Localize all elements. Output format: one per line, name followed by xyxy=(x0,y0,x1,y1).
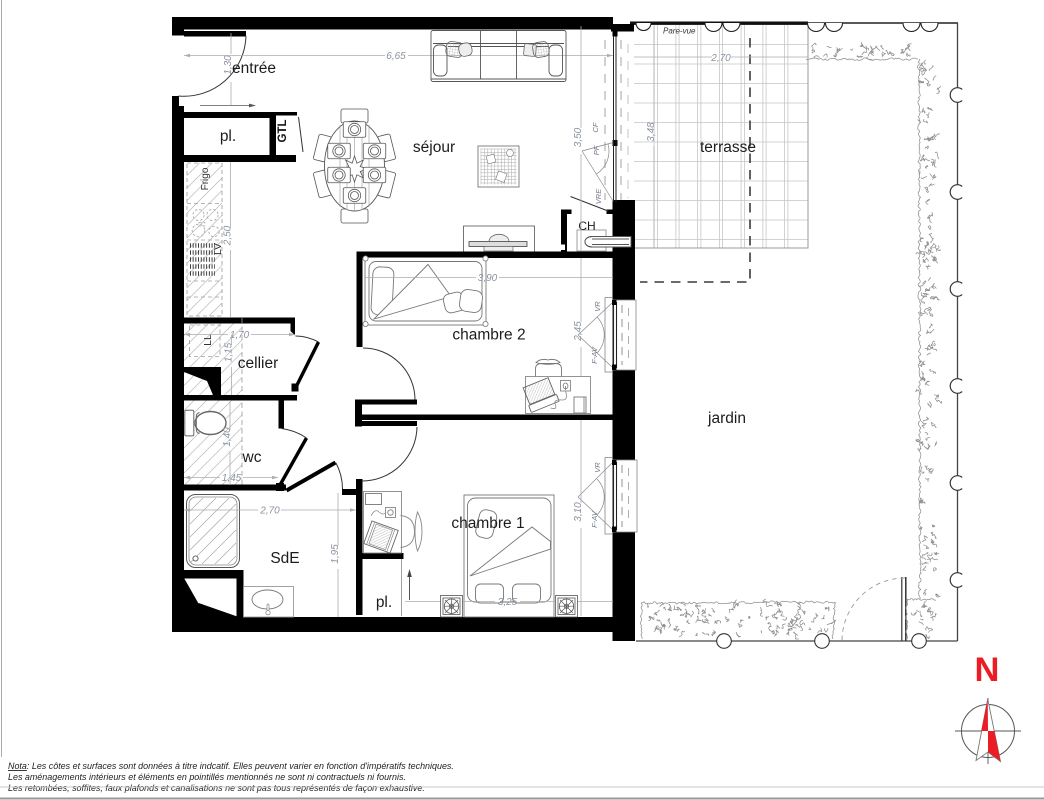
svg-text:2,70: 2,70 xyxy=(259,506,280,517)
svg-text:2,70: 2,70 xyxy=(710,53,731,64)
svg-text:terrasse: terrasse xyxy=(700,139,756,156)
svg-text:2,45: 2,45 xyxy=(573,321,584,342)
svg-text:cellier: cellier xyxy=(238,355,278,372)
svg-text:1,95: 1,95 xyxy=(330,544,341,564)
svg-text:entrée: entrée xyxy=(232,60,276,77)
svg-text:Les aménagements intérieurs et: Les aménagements intérieurs et éléments … xyxy=(8,772,406,782)
svg-text:3,10: 3,10 xyxy=(573,502,584,522)
svg-text:SdE: SdE xyxy=(270,550,299,567)
svg-text:1,45: 1,45 xyxy=(222,473,242,484)
svg-text:N: N xyxy=(975,651,1000,689)
svg-text:Frigo: Frigo xyxy=(200,167,211,190)
svg-text:1,40: 1,40 xyxy=(222,427,233,447)
svg-text:1,70: 1,70 xyxy=(230,330,250,341)
svg-text:wc: wc xyxy=(242,449,262,466)
svg-text:3,25: 3,25 xyxy=(498,597,518,608)
svg-text:Nota: Les côtes et surfaces so: Nota: Les côtes et surfaces sont données… xyxy=(8,761,454,771)
svg-text:pl.: pl. xyxy=(220,128,236,145)
svg-text:Pare-vue: Pare-vue xyxy=(663,27,696,36)
svg-text:6,65: 6,65 xyxy=(386,51,406,62)
svg-text:VR: VR xyxy=(593,301,602,312)
svg-text:Les retombées, soffites, faux: Les retombées, soffites, faux plafonds e… xyxy=(8,783,425,793)
svg-text:chambre 2: chambre 2 xyxy=(452,327,525,344)
svg-text:pl.: pl. xyxy=(376,594,392,611)
svg-text:3,50: 3,50 xyxy=(573,127,584,147)
svg-text:LL: LL xyxy=(202,334,214,346)
svg-text:F-AV: F-AV xyxy=(590,510,599,528)
svg-text:CF: CF xyxy=(591,122,600,132)
svg-text:séjour: séjour xyxy=(413,139,455,156)
svg-text:1,30: 1,30 xyxy=(223,55,234,75)
svg-text:chambre 1: chambre 1 xyxy=(451,515,524,532)
svg-text:GTL: GTL xyxy=(277,120,289,143)
svg-text:2,50: 2,50 xyxy=(223,225,234,246)
svg-text:3,90: 3,90 xyxy=(478,273,498,284)
svg-text:3,48: 3,48 xyxy=(646,122,657,142)
svg-text:1,15: 1,15 xyxy=(224,342,235,362)
svg-text:PF: PF xyxy=(592,145,601,155)
svg-text:VR: VR xyxy=(593,462,602,473)
svg-text:jardin: jardin xyxy=(707,410,746,427)
svg-text:F-AV: F-AV xyxy=(590,346,599,364)
svg-text:VRE: VRE xyxy=(594,188,603,204)
